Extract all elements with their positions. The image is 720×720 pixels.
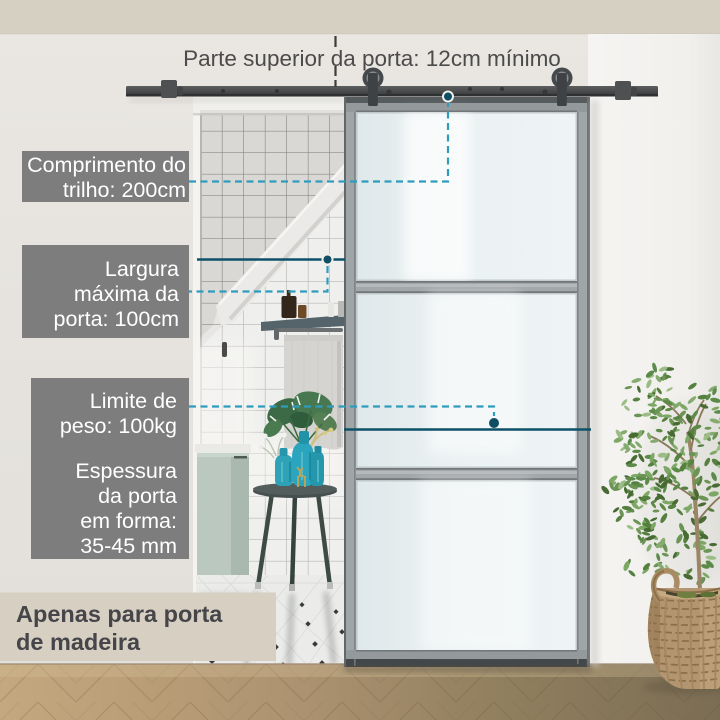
svg-text:Espessura: Espessura xyxy=(75,459,177,483)
svg-text:peso: 100kg: peso: 100kg xyxy=(60,414,177,438)
svg-text:de madeira: de madeira xyxy=(16,629,141,655)
svg-text:em forma:: em forma: xyxy=(80,509,177,533)
svg-text:Comprimento do: Comprimento do xyxy=(27,153,186,177)
svg-text:Limite de: Limite de xyxy=(90,389,177,413)
svg-text:Parte superior da porta: 12cm: Parte superior da porta: 12cm mínimo xyxy=(183,46,561,71)
svg-text:Largura: Largura xyxy=(105,257,179,281)
svg-text:Apenas para porta: Apenas para porta xyxy=(16,601,223,627)
svg-text:trilho: 200cm: trilho: 200cm xyxy=(63,178,186,202)
svg-text:porta: 100cm: porta: 100cm xyxy=(54,307,179,331)
svg-text:máxima da: máxima da xyxy=(74,282,179,306)
svg-text:35-45 mm: 35-45 mm xyxy=(80,534,177,558)
svg-text:da porta: da porta xyxy=(98,484,177,508)
